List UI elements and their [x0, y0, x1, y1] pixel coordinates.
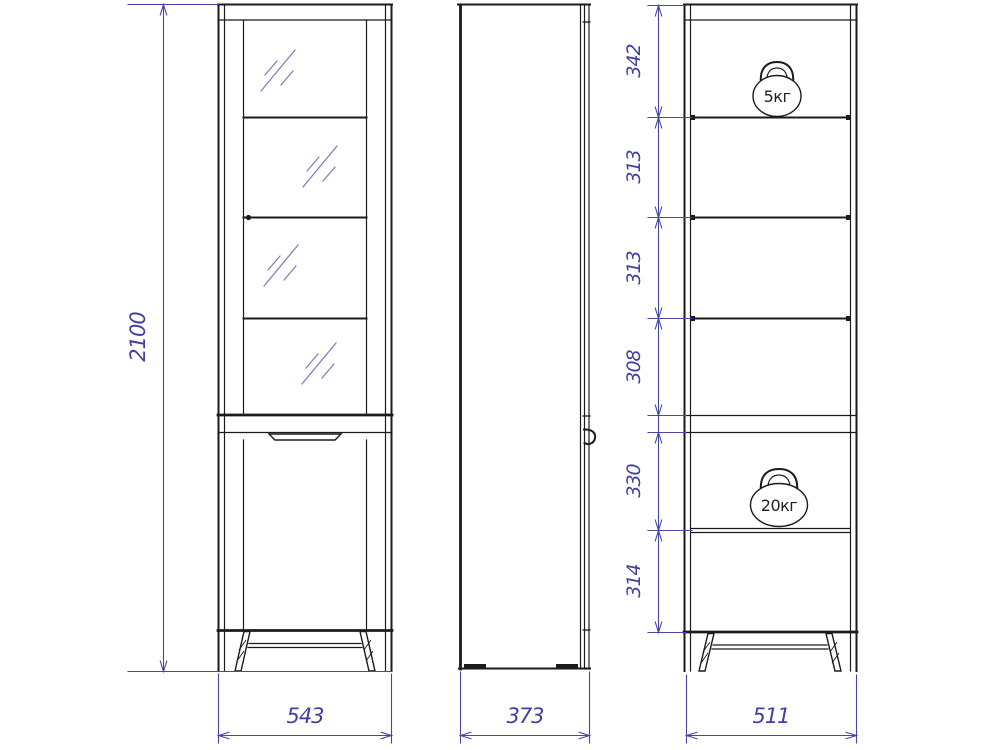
- dim-label-depth: 373: [506, 704, 543, 728]
- side-back-foot: [556, 664, 578, 670]
- technical-drawing-page: 5кг 20кг 2100 543 373 511: [0, 0, 1000, 750]
- dim-label-height: 2100: [126, 312, 150, 362]
- glass-hatch-pane2: [303, 146, 337, 187]
- internal-legs: [699, 634, 841, 672]
- dim-label-section-1: 342: [623, 44, 645, 77]
- dim-label-section-5: 330: [623, 463, 645, 497]
- dimension-width-511: 511: [687, 675, 857, 743]
- front-view-crown: [218, 5, 392, 21]
- dim-label-internal-width: 511: [752, 704, 789, 728]
- door-handle-groove: [269, 434, 341, 440]
- internal-view: 5кг 20кг: [684, 5, 857, 672]
- kettlebell-20kg-icon: 20кг: [751, 469, 808, 527]
- dim-label-section-3: 313: [623, 251, 645, 284]
- side-front-foot: [464, 664, 486, 670]
- front-view: [218, 5, 392, 672]
- dim-label-section-4: 308: [623, 349, 645, 383]
- weight-label-lower: 20кг: [761, 496, 798, 515]
- side-view: [458, 5, 595, 670]
- glass-hatch-pane4: [302, 343, 336, 384]
- kettlebell-5kg-icon: 5кг: [753, 62, 801, 117]
- side-door-edge: [583, 5, 595, 670]
- shelves: [690, 115, 851, 321]
- front-middle-band: [218, 415, 392, 433]
- lower-shelf: [691, 529, 850, 533]
- internal-middle-band: [684, 416, 857, 433]
- dimension-width-543: 543: [219, 674, 392, 743]
- shelf-pin-dot: [246, 215, 251, 220]
- dim-label-section-2: 313: [623, 150, 645, 183]
- dimension-height-2100: 2100: [126, 5, 392, 672]
- dimension-depth-373: 373: [461, 672, 590, 743]
- front-leg-stretcher: [248, 644, 362, 648]
- weight-label-upper: 5кг: [764, 87, 791, 106]
- internal-leg-stretcher: [712, 645, 828, 649]
- dim-label-section-6: 314: [623, 564, 645, 597]
- glass-hatch-pane1: [261, 50, 295, 91]
- lower-door: [244, 434, 367, 630]
- internal-crown: [684, 5, 857, 21]
- dimension-chain-sections: 342 313 313 308 330 314: [623, 6, 692, 633]
- glass-door: [244, 20, 367, 415]
- front-legs: [235, 632, 375, 672]
- dim-label-front-width: 543: [286, 704, 323, 728]
- glass-hatch-pane3: [264, 245, 298, 286]
- cabinet-drawing: 5кг 20кг 2100 543 373 511: [0, 0, 1000, 750]
